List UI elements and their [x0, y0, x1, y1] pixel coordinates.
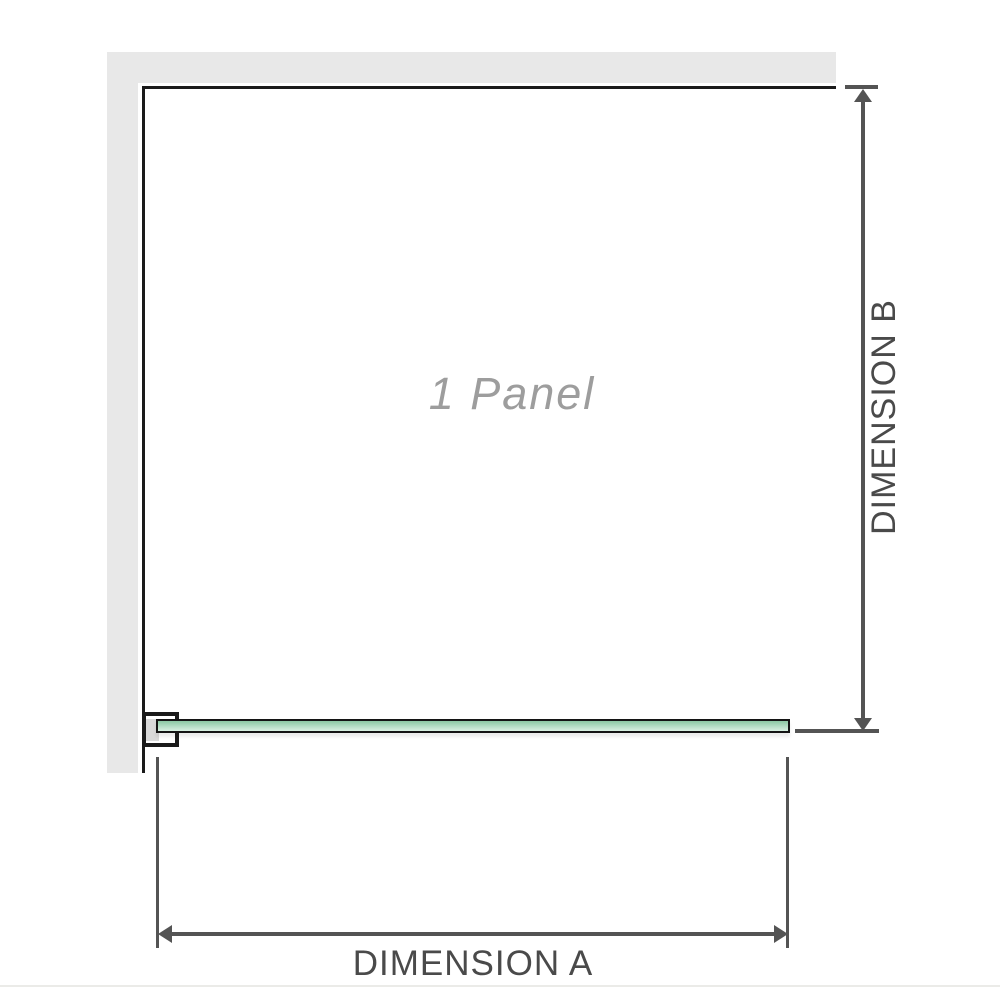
dim-a-line	[164, 932, 780, 936]
dim-a-arrow-left-icon	[158, 925, 172, 943]
dim-a-extension-left	[156, 757, 159, 948]
dim-b-arrow-down-icon	[854, 718, 872, 731]
glass-panel-bar	[156, 719, 790, 733]
bottom-faint-rule	[0, 985, 1000, 987]
dim-a-arrow-right-icon	[774, 925, 788, 943]
panel-count-label: 1 Panel	[402, 369, 622, 419]
panel-outline-top	[142, 86, 836, 89]
dim-b-label: DIMENSION B	[866, 267, 902, 567]
wall-top-band	[107, 52, 836, 83]
panel-outline-left	[142, 86, 145, 773]
wall-left-band	[107, 52, 138, 773]
dim-b-arrow-up-icon	[854, 89, 872, 102]
dimension-diagram: 1 Panel DIMENSION B DIMENSION A	[0, 0, 1000, 1000]
dim-a-label: DIMENSION A	[160, 944, 786, 984]
dim-a-extension-right	[786, 757, 789, 948]
